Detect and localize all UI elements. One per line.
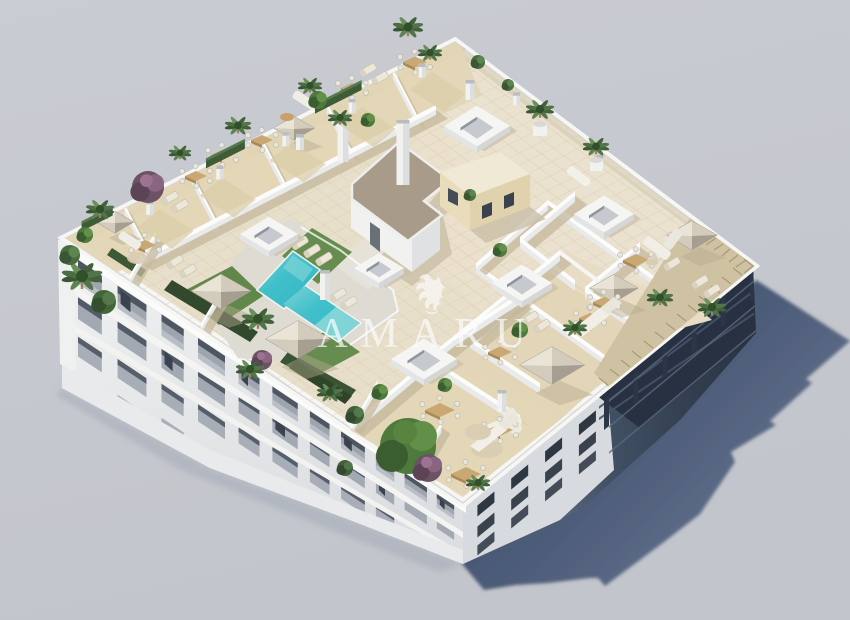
svg-text:AMARU: AMARU — [317, 311, 538, 357]
